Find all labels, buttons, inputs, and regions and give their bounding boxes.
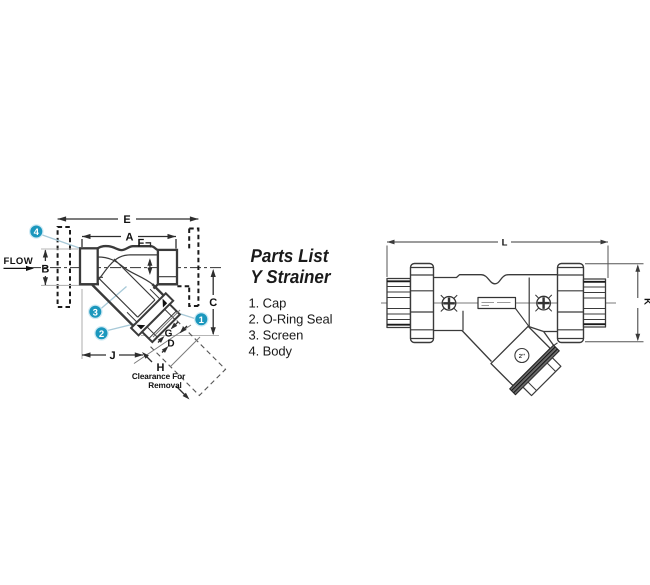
svg-text:C: C <box>209 297 217 309</box>
svg-text:4: 4 <box>34 227 40 238</box>
svg-text:Parts List: Parts List <box>251 245 330 266</box>
svg-text:3. Screen: 3. Screen <box>249 328 304 343</box>
svg-text:J: J <box>109 350 115 362</box>
svg-text:Y Strainer: Y Strainer <box>251 266 333 287</box>
svg-text:L: L <box>502 238 508 249</box>
svg-text:4. Body: 4. Body <box>249 344 293 359</box>
svg-text:3: 3 <box>93 307 98 318</box>
svg-text:Removal: Removal <box>148 381 181 390</box>
svg-text:K: K <box>642 298 650 305</box>
svg-text:2: 2 <box>99 329 104 340</box>
svg-text:2″: 2″ <box>519 353 525 360</box>
svg-text:Clearance For: Clearance For <box>132 372 186 381</box>
svg-text:1: 1 <box>199 315 205 326</box>
svg-text:D: D <box>167 339 174 350</box>
svg-text:F: F <box>138 238 145 250</box>
svg-text:1. Cap: 1. Cap <box>249 296 287 311</box>
svg-text:FLOW: FLOW <box>4 256 34 267</box>
svg-text:2. O-Ring Seal: 2. O-Ring Seal <box>249 312 333 327</box>
svg-text:A: A <box>126 232 134 244</box>
svg-text:B: B <box>41 264 49 276</box>
svg-text:E: E <box>123 214 130 226</box>
